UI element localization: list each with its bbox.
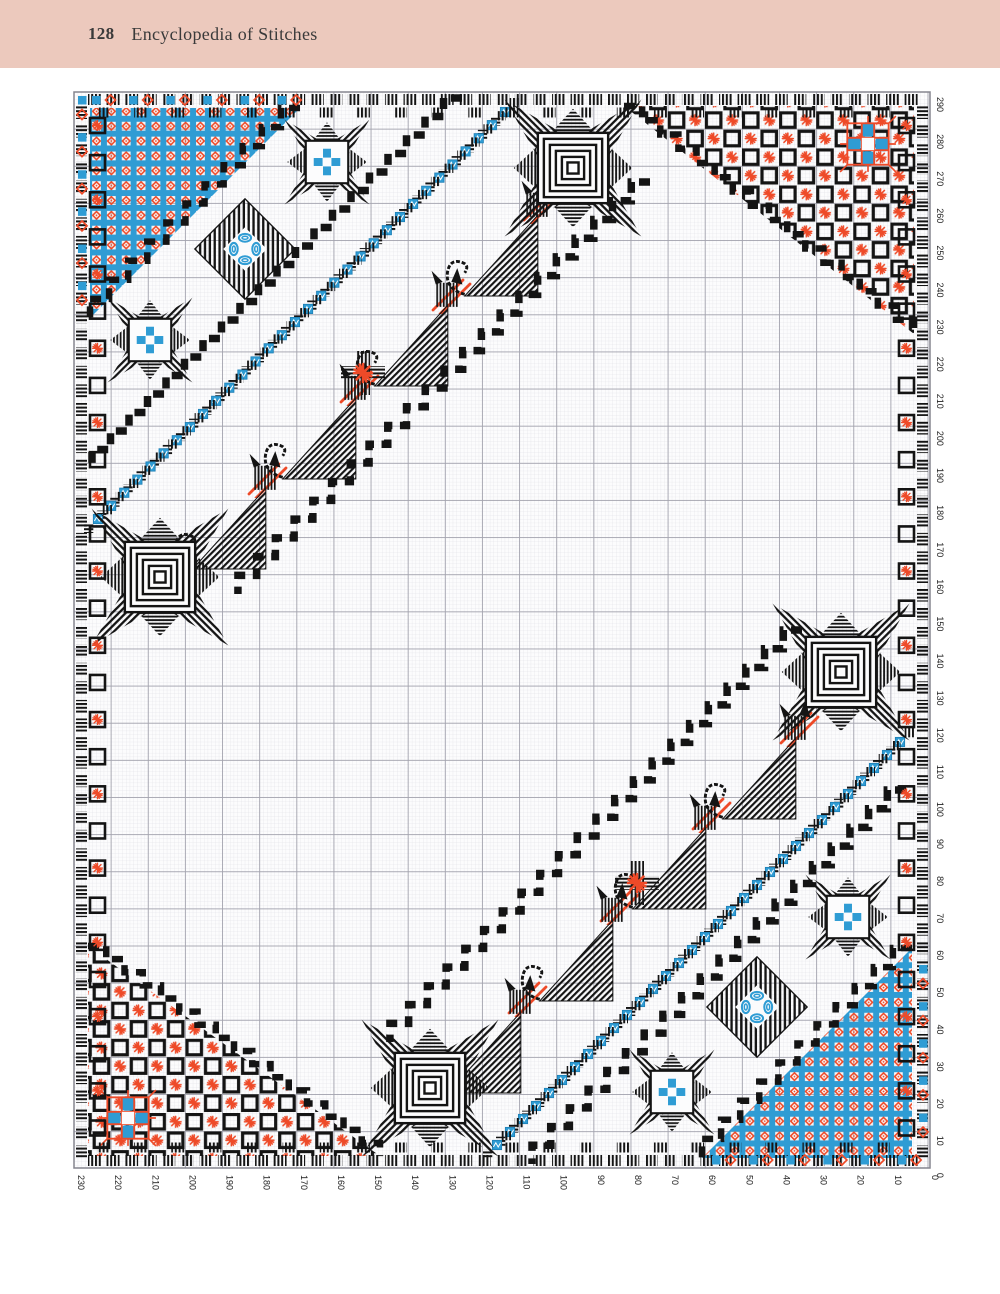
bottom-axis-label: 180 [262,1175,272,1190]
right-axis-label: 50 [935,987,945,997]
chequer-block [632,1001,641,1010]
blue-square-accent [78,245,87,254]
bottom-axis-label: 120 [484,1175,494,1190]
chequer-block [431,177,440,186]
right-axis-label: 240 [935,283,945,298]
chequer-block [497,111,506,120]
border-eyelet-burst [93,195,103,205]
chequer-block [208,400,217,409]
right-axis-label: 40 [935,1025,945,1035]
right-axis-label: 200 [935,431,945,446]
border-eyelet-burst [902,418,912,428]
blue-square-accent [919,1039,928,1048]
border-eyelet-burst [93,418,103,428]
blue-square-accent [712,1156,721,1165]
chequer-block [300,308,309,317]
bottom-axis-label: 110 [522,1175,532,1189]
chequer-block [736,897,745,906]
blue-square-accent [919,1002,928,1011]
blue-square-accent [823,1156,832,1165]
chequer-block [287,321,296,330]
chequer-block [502,1131,511,1140]
bottom-axis-label: 60 [707,1175,717,1185]
right-axis-label: 220 [935,357,945,372]
chequer-block [129,479,138,488]
bottom-axis-label: 190 [225,1175,235,1190]
right-axis-label: 60 [935,950,945,960]
border-eyelet-burst [93,269,103,279]
border-eyelet-burst [93,566,103,576]
chequer-block [339,269,348,278]
right-axis-label: 230 [935,320,945,335]
concentric-square-star [773,604,910,741]
border-eyelet-burst [902,715,912,725]
chequer-block [619,1014,628,1023]
chequer-block [879,754,888,763]
right-axis-label: 20 [935,1099,945,1109]
blue-square-accent [78,133,87,142]
blue-square-accent [203,96,212,105]
blue-square-accent [129,96,138,105]
small-eyelet-star [806,875,891,960]
blue-square-accent [92,96,101,105]
chequer-block [658,975,667,984]
chequer-block [260,347,269,356]
border-eyelet-burst [902,121,912,131]
right-axis-label: 120 [935,728,945,743]
bottom-axis-label: 40 [781,1175,791,1185]
right-axis-label: 70 [935,913,945,923]
concentric-square-star [92,509,229,646]
book-page: 128 Encyclopedia of Stitches [0,0,1000,1294]
border-eyelet-burst [93,789,103,799]
chequer-block [515,1118,524,1127]
chequer-block [221,387,230,396]
bottom-axis-label: 210 [150,1175,160,1190]
chequer-block [541,1092,550,1101]
blue-square-accent [78,207,87,216]
red-burst-cross [628,874,646,892]
chequer-block [814,819,823,828]
border-eyelet-burst [902,269,912,279]
border-eyelet-burst [902,343,912,353]
border-eyelet-burst [902,789,912,799]
bottom-axis-label: 130 [447,1175,457,1190]
bottom-axis-label: 150 [373,1175,383,1190]
blue-square-accent [786,1156,795,1165]
border-eyelet-burst [93,121,103,131]
bottom-axis-label: 20 [856,1175,866,1185]
right-axis-label: 260 [935,208,945,223]
right-axis-label: 130 [935,691,945,706]
border-eyelet-burst [902,640,912,650]
blue-square-accent [166,96,175,105]
bottom-axis-label: 90 [596,1175,606,1185]
chequer-block [142,466,151,475]
chequer-block [528,1105,537,1114]
right-axis-label: 250 [935,245,945,260]
chequer-block [313,295,322,304]
right-axis-label: 0 [935,1173,945,1178]
right-axis-label: 210 [935,394,945,409]
border-eyelet-burst [902,195,912,205]
chequer-block [788,845,797,854]
border-eyelet-burst [93,343,103,353]
chequer-block [181,426,190,435]
chequer-block [697,936,706,945]
right-axis-label: 170 [935,542,945,557]
bottom-axis-label: 230 [76,1175,86,1190]
right-axis-label: 280 [935,134,945,149]
chequer-block [801,832,810,841]
border-eyelet-burst [902,1012,912,1022]
border-eyelet-burst [93,937,103,947]
blue-square-accent [898,1156,907,1165]
chequer-block [606,1027,615,1036]
chequer-block [378,229,387,238]
blue-square-accent [919,965,928,974]
chequer-block [234,374,243,383]
chequer-block [554,1079,563,1088]
bottom-axis-label: 50 [744,1175,754,1185]
chequer-block [405,203,414,212]
chequer-block [168,439,177,448]
blue-square-accent [78,170,87,179]
right-axis-label: 100 [935,802,945,817]
right-axis-label: 90 [935,839,945,849]
chequer-block [195,413,204,422]
bottom-axis-label: 70 [670,1175,680,1185]
chequer-block [723,910,732,919]
blue-square-accent [78,96,87,105]
right-axis-label: 290 [935,97,945,112]
chequer-block [866,767,875,776]
right-axis-label: 140 [935,654,945,669]
concentric-square-star [362,1020,499,1157]
small-eyelet-star [630,1050,715,1135]
right-axis-label: 160 [935,579,945,594]
concentric-square-star [505,100,642,237]
bottom-axis-label: 200 [187,1175,197,1190]
border-eyelet-burst [93,715,103,725]
chequer-block [710,923,719,932]
chequer-block [840,793,849,802]
bottom-axis-label: 170 [299,1175,309,1190]
chequer-block [470,137,479,146]
bottom-axis-label: 140 [410,1175,420,1190]
chequer-block [247,361,256,370]
right-axis-label: 30 [935,1062,945,1072]
right-axis-label: 10 [935,1136,945,1146]
chequer-block [775,858,784,867]
blue-square-accent [919,1076,928,1085]
chequer-block [762,871,771,880]
bottom-axis-label: 160 [336,1175,346,1190]
red-burst-cross [354,364,372,382]
right-axis-label: 190 [935,468,945,483]
chequer-block [853,780,862,789]
bottom-axis-label: 30 [819,1175,829,1185]
border-eyelet-burst [93,640,103,650]
chequer-block [273,334,282,343]
blue-square-accent [78,282,87,291]
chequer-block [352,256,361,265]
chequer-block [444,164,453,173]
chequer-block [749,884,758,893]
border-eyelet-burst [902,937,912,947]
blue-square-accent [861,1156,870,1165]
chequer-block [116,492,125,501]
border-eyelet-burst [93,492,103,502]
chequer-block [365,242,374,251]
chequer-block [418,190,427,199]
border-eyelet-burst [93,1012,103,1022]
blue-square-accent [749,1156,758,1165]
blue-square-accent [241,96,250,105]
bottom-axis-label: 100 [559,1175,569,1190]
right-axis-label: 110 [935,765,945,779]
chequer-block [827,806,836,815]
chequer-block [103,505,112,514]
bottom-axis-label: 220 [113,1175,123,1190]
right-axis-label: 270 [935,171,945,186]
border-eyelet-burst [93,863,103,873]
small-eyelet-star [285,120,370,205]
chequer-block [684,949,693,958]
right-axis-label: 80 [935,876,945,886]
border-eyelet-burst [902,492,912,502]
chequer-block [671,962,680,971]
bottom-axis-label: 10 [893,1175,903,1185]
chequer-block [457,151,466,160]
chequer-block [392,216,401,225]
border-eyelet-burst [902,863,912,873]
border-eyelet-burst [902,566,912,576]
blue-square-accent [278,96,287,105]
border-eyelet-burst [902,1086,912,1096]
border-eyelet-burst [93,1086,103,1096]
chequer-block [326,282,335,291]
right-axis-label: 150 [935,616,945,631]
chequer-block [645,988,654,997]
small-eyelet-star [108,298,193,383]
bottom-axis-label: 80 [633,1175,643,1185]
chequer-block [593,1040,602,1049]
chequer-block [567,1066,576,1075]
embroidery-chart: 2302202102001901801701601501401301201101… [0,0,1000,1294]
chequer-block [155,452,164,461]
chequer-block [580,1053,589,1062]
chequer-block [483,124,492,133]
right-axis-label: 180 [935,505,945,520]
blue-square-accent [919,1114,928,1123]
